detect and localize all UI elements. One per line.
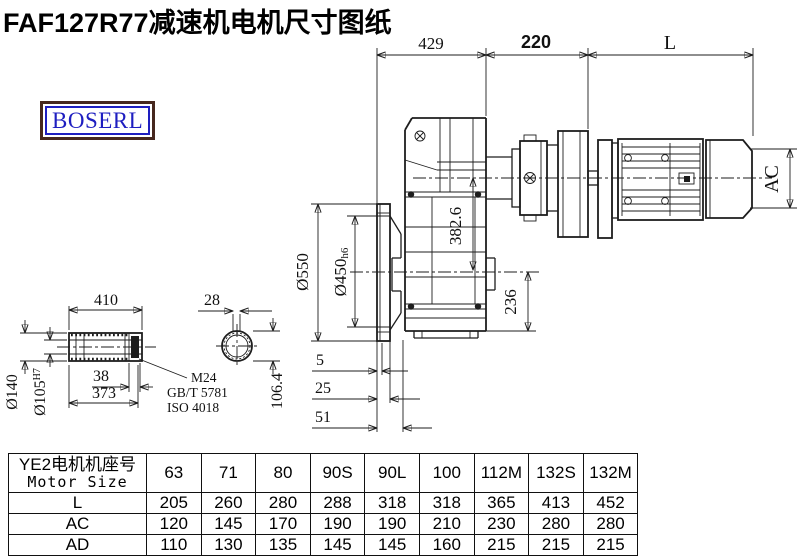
cell: 190 <box>365 514 420 535</box>
bolt-icon <box>625 198 632 205</box>
drawing-page: FAF127R77减速机电机尺寸图纸 BOSERL 429 220 L <box>0 0 800 557</box>
cell: 120 <box>147 514 202 535</box>
cell: 365 <box>474 493 529 514</box>
dim-410-label: 410 <box>94 292 118 309</box>
centre-dimensions: 382.6 236 <box>446 178 536 331</box>
cell: 130 <box>201 535 256 556</box>
size-col-header: 132M <box>583 454 638 493</box>
dim-220-label: 220 <box>521 32 551 52</box>
cell: 210 <box>419 514 474 535</box>
bolt-icon <box>662 155 669 162</box>
cell: 160 <box>419 535 474 556</box>
table-row-AD: AD 110 130 135 145 145 160 215 215 215 <box>9 535 638 556</box>
table-header-motor-size: YE2电机机座号 Motor Size <box>9 454 147 493</box>
size-col-header: 100 <box>419 454 474 493</box>
cell: 288 <box>310 493 365 514</box>
dim-L-label: L <box>664 32 676 54</box>
ac-dimension: AC <box>750 149 797 208</box>
cell: 452 <box>583 493 638 514</box>
dim-382-label: 382.6 <box>446 207 465 245</box>
size-col-header: 80 <box>256 454 311 493</box>
bolt-icon <box>625 155 632 162</box>
nameplate-mark <box>684 176 690 182</box>
size-col-header: 132S <box>529 454 584 493</box>
bolt-icon <box>408 191 414 197</box>
dim-25-label: 25 <box>315 380 331 397</box>
dim-373-label: 373 <box>92 385 116 402</box>
hollow-shaft-detail: 410 Ø140 Ø105H7 38 373 <box>4 292 228 416</box>
note-gbt5781: GB/T 5781 <box>167 385 228 400</box>
cell: 280 <box>256 493 311 514</box>
input-adapter <box>486 131 618 238</box>
note-m24: M24 <box>191 370 217 385</box>
dim-28-label: 28 <box>204 292 220 309</box>
cell: 215 <box>583 535 638 556</box>
row-label: L <box>9 493 147 514</box>
cell: 318 <box>365 493 420 514</box>
cell: 280 <box>529 514 584 535</box>
cell: 205 <box>147 493 202 514</box>
motor-size-table: YE2电机机座号 Motor Size 63 71 80 90S 90L 100… <box>8 453 638 556</box>
cell: 215 <box>529 535 584 556</box>
size-col-header: 71 <box>201 454 256 493</box>
cell: 318 <box>419 493 474 514</box>
size-col-header: 112M <box>474 454 529 493</box>
cell: 145 <box>365 535 420 556</box>
dim-450h6-label: Ø450h6 <box>331 247 351 296</box>
dim-5-label: 5 <box>316 352 324 369</box>
dim-38-label: 38 <box>93 368 109 385</box>
size-col-header: 63 <box>147 454 202 493</box>
cell: 110 <box>147 535 202 556</box>
shaft-end-retainer <box>131 336 139 358</box>
cell: 190 <box>310 514 365 535</box>
note-iso4018: ISO 4018 <box>167 400 219 415</box>
dim-236-label: 236 <box>501 289 520 315</box>
dim-140-label: Ø140 <box>4 374 21 410</box>
cell: 145 <box>310 535 365 556</box>
cell: 135 <box>256 535 311 556</box>
dim-AC-label: AC <box>761 165 783 193</box>
dim-106-label: 106.4 <box>269 373 286 409</box>
size-col-header: 90S <box>310 454 365 493</box>
motor <box>618 139 752 220</box>
flange-dimensions: Ø550 Ø450h6 5 25 51 <box>293 204 432 428</box>
row-label: AD <box>9 535 147 556</box>
bolt-icon <box>408 303 414 309</box>
row-label: AC <box>9 514 147 535</box>
dim-51-label: 51 <box>315 409 331 426</box>
cell: 413 <box>529 493 584 514</box>
dim-550-label: Ø550 <box>293 253 312 291</box>
cell: 280 <box>583 514 638 535</box>
bolt-icon <box>475 191 481 197</box>
bolt-icon <box>475 303 481 309</box>
dim-105H7-label: Ø105H7 <box>32 368 49 416</box>
fan-cowl <box>706 140 752 218</box>
table-header-row: YE2电机机座号 Motor Size 63 71 80 90S 90L 100… <box>9 454 638 493</box>
cell: 215 <box>474 535 529 556</box>
cell: 170 <box>256 514 311 535</box>
bolt-icon <box>662 198 669 205</box>
table-row-AC: AC 120 145 170 190 190 210 230 280 280 <box>9 514 638 535</box>
cell: 230 <box>474 514 529 535</box>
dim-429-label: 429 <box>418 34 444 53</box>
cell: 145 <box>201 514 256 535</box>
size-col-header: 90L <box>365 454 420 493</box>
output-flange <box>377 204 403 432</box>
cell: 260 <box>201 493 256 514</box>
table-row-L: L 205 260 280 288 318 318 365 413 452 <box>9 493 638 514</box>
